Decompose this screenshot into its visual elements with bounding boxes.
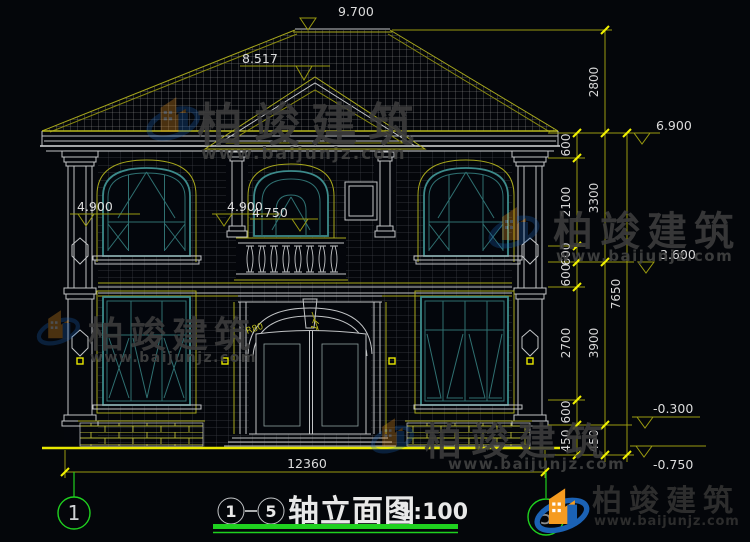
elev-gable: 8.517 — [242, 51, 278, 66]
title-underline — [213, 524, 458, 529]
title-block: 1 5 轴立面图 1:100 — [213, 494, 468, 533]
balcony-balustrade — [234, 238, 348, 282]
elev-left-column: 4.900 — [77, 199, 113, 214]
title-axis-end: 5 — [265, 502, 276, 521]
dim-600-a: 600 — [559, 134, 573, 157]
watermark-site: www.baijunjz.com — [90, 350, 257, 366]
window-upper-small — [345, 182, 377, 220]
elev-plinth: -0.300 — [653, 401, 693, 416]
window-lower-right — [414, 291, 522, 413]
dim-2700: 2700 — [559, 328, 573, 359]
elev-eave: 6.900 — [656, 118, 692, 133]
dim-600-c: 600 — [559, 264, 573, 287]
title-axis-start: 1 — [225, 502, 236, 521]
dim-3900: 3900 — [587, 328, 601, 359]
entrance-door — [256, 331, 366, 435]
dim-12360: 12360 — [287, 456, 327, 471]
brand-logo: 柏竣建筑 www.baijunjz.com — [533, 484, 740, 536]
brand-logo-site: www.baijunjz.com — [594, 514, 740, 529]
axis-bubble-left: 1 — [58, 472, 90, 529]
elevation-drawing-canvas: R80 R5017 — [0, 0, 750, 542]
watermark-site: www.baijunjz.com — [448, 455, 625, 473]
elev-center-sub: 4.750 — [252, 205, 288, 220]
dim-2800: 2800 — [587, 67, 601, 98]
watermark-site: www.baijunjz.com — [556, 247, 733, 265]
upper-column-left — [226, 152, 248, 237]
watermark-site: www.baijunjz.com — [201, 144, 407, 164]
elev-ridge: 9.700 — [338, 4, 374, 19]
cad-elevation-screenshot: R80 R5017 — [0, 0, 750, 542]
title-scale: 1:100 — [398, 500, 468, 525]
axis-left-number: 1 — [68, 501, 81, 525]
elev-ground: -0.750 — [653, 457, 693, 472]
plinth-left — [78, 421, 205, 446]
pilaster-right — [512, 151, 548, 448]
pilaster-left — [62, 151, 98, 448]
dim-7650: 7650 — [609, 279, 623, 310]
